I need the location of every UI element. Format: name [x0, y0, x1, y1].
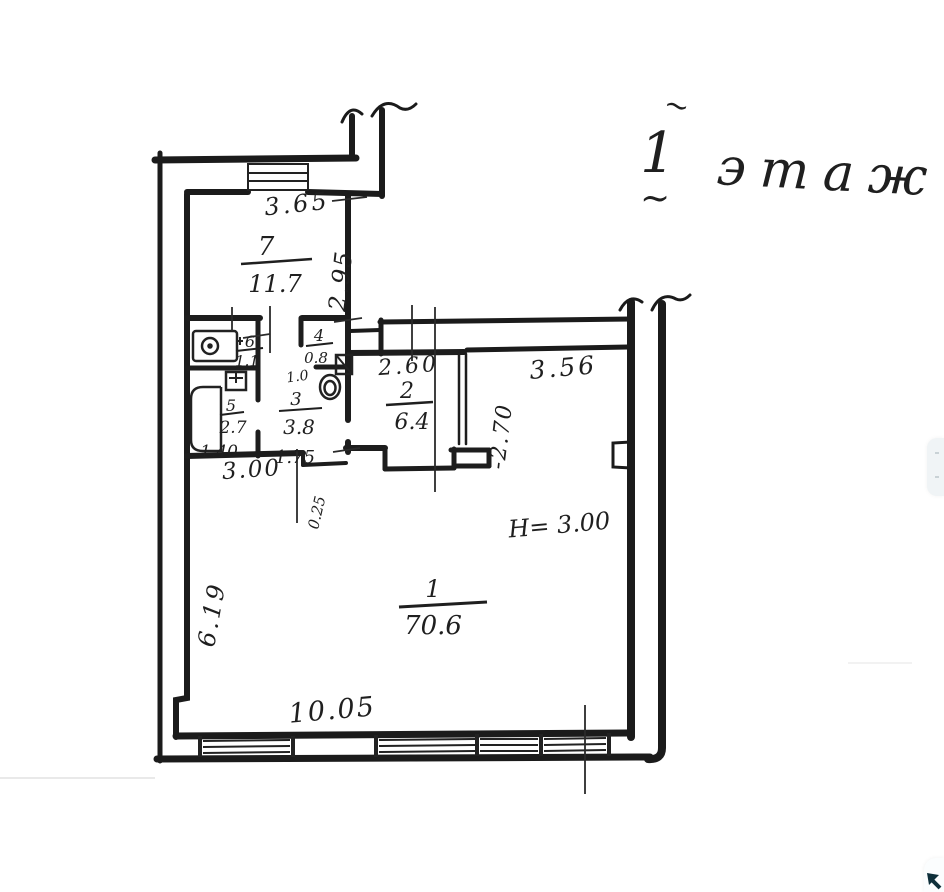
- room3-area-label: 3.8: [283, 415, 315, 439]
- fixture-washbasin-drain: [209, 345, 212, 348]
- ceiling-height-note: H= 3.00: [506, 507, 611, 544]
- room1-number-label: 1: [425, 575, 440, 603]
- wall-topright-outer: [380, 319, 631, 322]
- title-floor-word: этаж: [715, 137, 942, 209]
- dim-room7-depth: 2.95: [323, 248, 358, 313]
- floorplan-scan-page: 3.65 7 11.7 2.95 6 1.1 4 0.8 1.0 3 3.8 1…: [0, 0, 944, 892]
- fixture-sink-mark: [229, 372, 243, 383]
- panel-dot: [935, 476, 939, 478]
- window-room7-lines: [248, 173, 308, 181]
- room3-number-label: 3: [290, 389, 301, 410]
- cropped-panel-fragment: [927, 438, 944, 496]
- dim-room7-width: 3.65: [263, 187, 331, 222]
- window-room7: [248, 164, 308, 190]
- room5-number-label: 5: [226, 396, 236, 415]
- dim-hall-width: 3.00: [221, 455, 282, 485]
- wall-topright-inner: [467, 347, 628, 350]
- break-mark-chimney-right: [372, 104, 416, 117]
- room7-number-label: 7: [258, 232, 275, 262]
- room2-fraction-bar: [386, 402, 433, 405]
- room2-number-label: 2: [399, 379, 414, 404]
- wall-bottom-outer: [157, 757, 650, 759]
- room1-area-label: 70.6: [404, 611, 462, 641]
- dim-room2-depth: -2.70: [485, 402, 518, 471]
- wall-porch-bottom: [385, 468, 454, 469]
- wall-right-outer: [648, 304, 662, 759]
- labels: 3.65 7 11.7 2.95 6 1.1 4 0.8 1.0 3 3.8 1…: [192, 86, 942, 730]
- dim-room3-width: 1.75: [275, 447, 315, 468]
- floor-plan-drawing: 3.65 7 11.7 2.95 6 1.1 4 0.8 1.0 3 3.8 1…: [0, 0, 944, 892]
- fixture-toilet-bowl-inner: [325, 381, 336, 395]
- wall-shaft: [350, 330, 380, 331]
- wall-left-inner: [176, 194, 187, 737]
- room6-area-label: 1.1: [235, 352, 259, 370]
- dim-bottom-wall: 10.05: [287, 691, 377, 729]
- fixture-washbasin: [193, 331, 237, 361]
- room2-area-label: 6.4: [395, 410, 430, 435]
- title-floor-number: 1: [640, 121, 676, 186]
- break-mark-right-outer: [652, 295, 690, 310]
- room4-area-label: 0.8: [304, 349, 328, 367]
- window-bottom-1: [203, 740, 290, 753]
- dim-room2-width: 2.60: [376, 352, 440, 381]
- wall-bottom-inner: [176, 733, 628, 736]
- window-bottom-3: [480, 739, 538, 751]
- window-bottom-2: [379, 739, 475, 752]
- title-tilde-bottom: ~: [640, 178, 670, 219]
- scan-smudge-bottom-left: [0, 777, 155, 779]
- corner-arrow-button[interactable]: [924, 858, 944, 892]
- dim-left-wall: 6.19: [192, 580, 231, 649]
- dim-top-right-wall: 3.56: [528, 350, 598, 385]
- room1-fraction-bar: [399, 602, 487, 607]
- wall-room2-top: [348, 352, 464, 353]
- window-bottom-4: [544, 738, 606, 751]
- room7-fraction-bar: [241, 259, 312, 264]
- arrow-up-left-icon: [924, 870, 944, 892]
- panel-dot: [935, 452, 939, 454]
- wall-top-outer: [155, 158, 356, 160]
- dim-room4-width: 1.0: [285, 368, 309, 387]
- dim-wall-offset: 0.25: [304, 494, 329, 531]
- room4-number-label: 4: [313, 326, 324, 345]
- room5-area-label: 2.7: [218, 418, 246, 438]
- scan-smudge-right: [848, 662, 912, 664]
- room7-area-label: 11.7: [248, 270, 302, 298]
